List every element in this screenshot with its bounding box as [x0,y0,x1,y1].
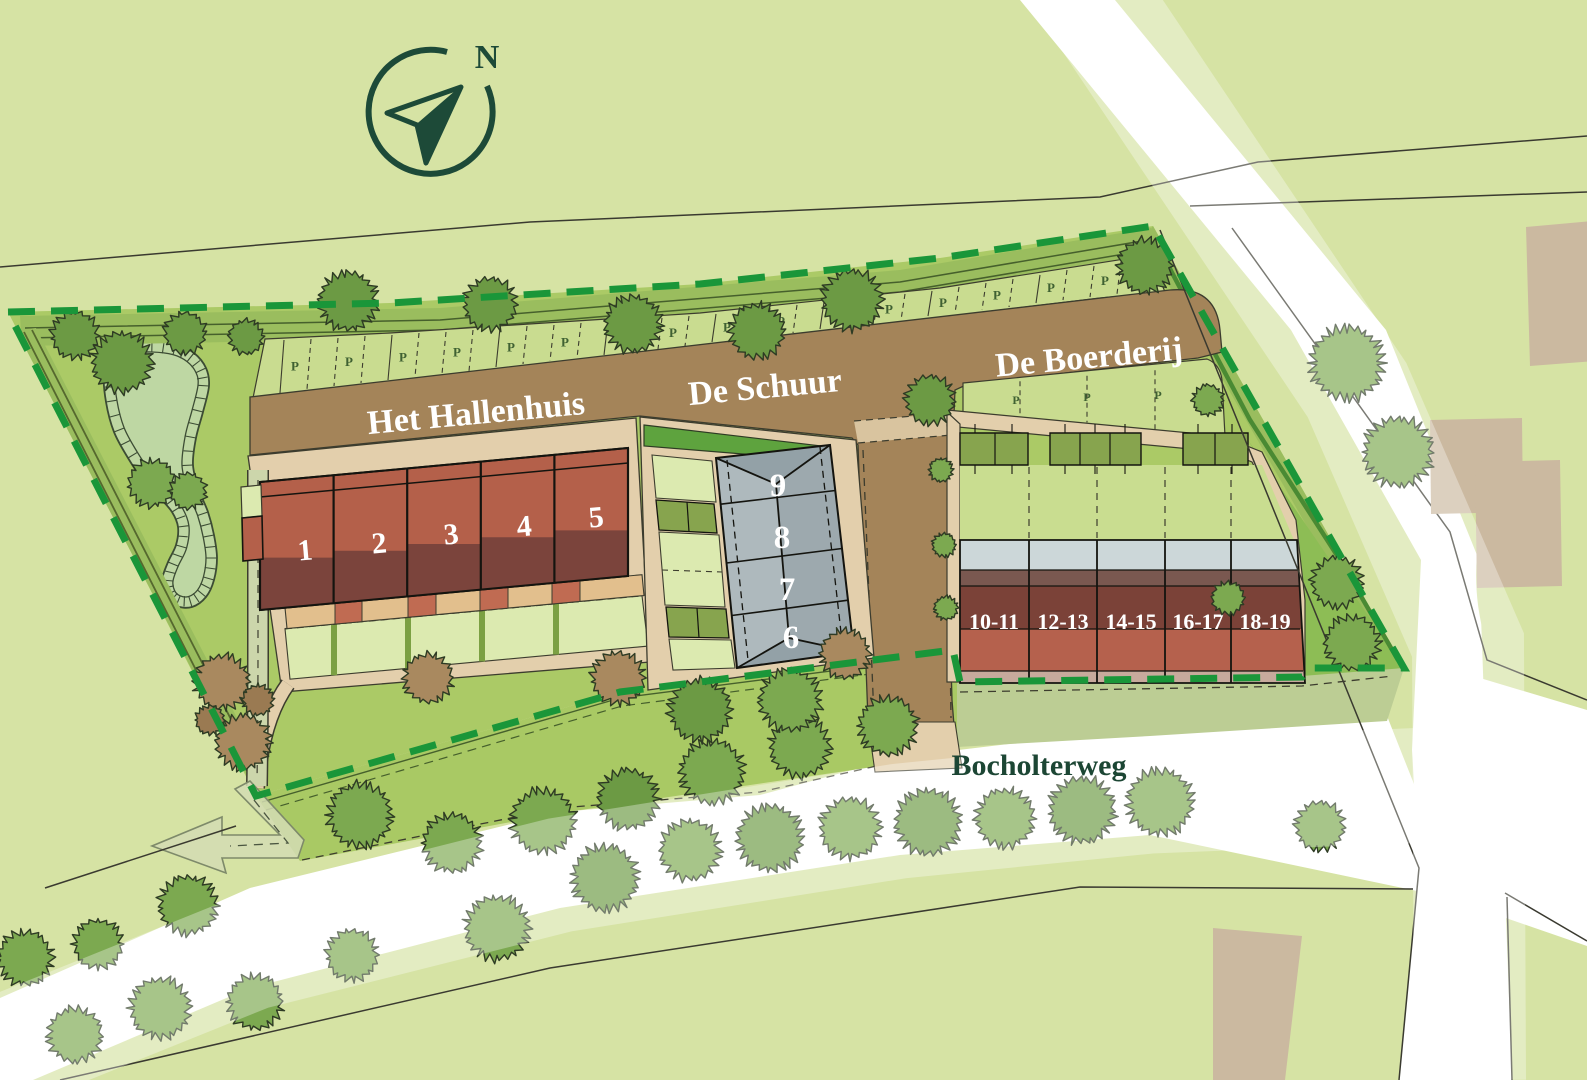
svg-text:P: P [939,295,947,310]
svg-text:P: P [669,325,677,340]
svg-text:P: P [561,335,569,350]
svg-text:1: 1 [296,533,314,567]
svg-text:P: P [993,288,1001,303]
svg-text:P: P [1083,390,1090,404]
svg-text:14-15: 14-15 [1105,609,1156,634]
svg-text:P: P [1154,388,1161,402]
svg-text:18-19: 18-19 [1239,609,1290,634]
svg-text:16-17: 16-17 [1172,609,1223,634]
svg-text:Bocholterweg: Bocholterweg [952,749,1127,782]
svg-text:P: P [345,354,353,369]
svg-text:5: 5 [587,500,605,534]
svg-text:P: P [453,344,461,359]
svg-text:P: P [399,349,407,364]
svg-text:7: 7 [779,572,796,608]
svg-text:P: P [1101,273,1109,288]
svg-text:4: 4 [515,509,533,543]
svg-text:P: P [885,301,893,316]
svg-text:9: 9 [770,468,787,504]
svg-text:P: P [291,358,299,373]
svg-text:P: P [507,340,515,355]
svg-text:10-11: 10-11 [969,609,1019,634]
svg-text:6: 6 [783,620,800,656]
svg-text:P: P [1012,393,1019,407]
svg-text:12-13: 12-13 [1037,609,1088,634]
svg-text:2: 2 [370,526,388,560]
svg-text:N: N [475,39,500,76]
svg-text:P: P [1047,280,1055,295]
svg-text:8: 8 [774,520,791,556]
svg-text:3: 3 [442,517,460,551]
